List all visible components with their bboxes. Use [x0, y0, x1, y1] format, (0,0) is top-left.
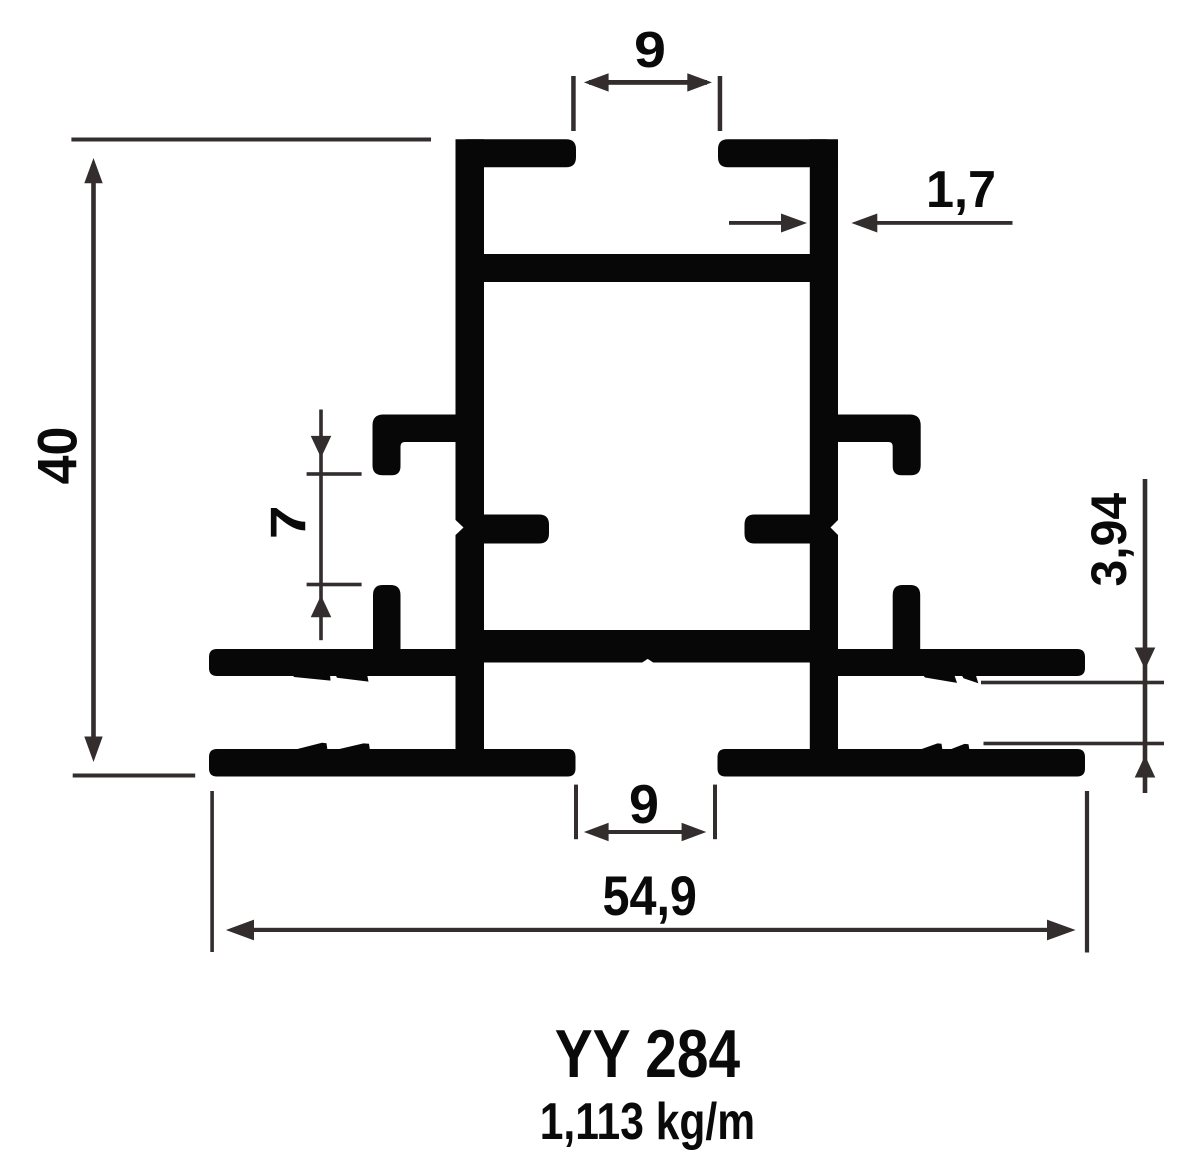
- svg-text:54,9: 54,9: [602, 864, 697, 927]
- svg-text:1,7: 1,7: [926, 161, 996, 219]
- svg-text:1,113 kg/m: 1,113 kg/m: [540, 1092, 755, 1150]
- svg-text:9: 9: [634, 21, 666, 78]
- svg-text:9: 9: [629, 773, 659, 835]
- svg-text:YY 284: YY 284: [555, 1016, 740, 1092]
- svg-text:40: 40: [26, 427, 89, 485]
- svg-text:7: 7: [260, 505, 316, 539]
- svg-text:3,94: 3,94: [1081, 493, 1137, 587]
